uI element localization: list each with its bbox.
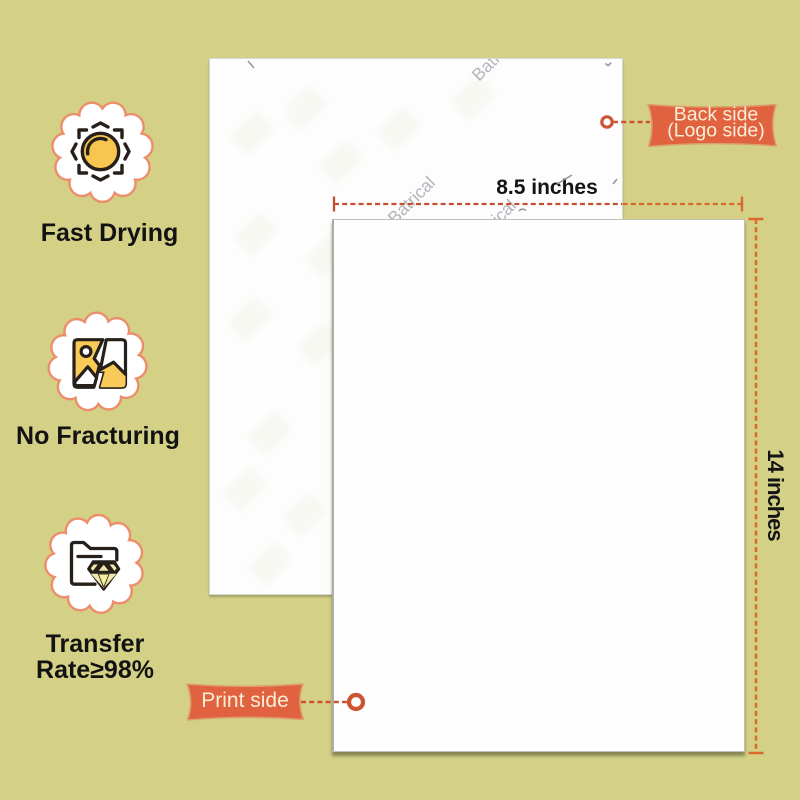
svg-text:8.5 inches: 8.5 inches [496,176,598,199]
svg-text:(Logo side): (Logo side) [667,120,765,142]
svg-text:14 inches: 14 inches [763,449,788,541]
svg-text:Print side: Print side [201,689,289,712]
